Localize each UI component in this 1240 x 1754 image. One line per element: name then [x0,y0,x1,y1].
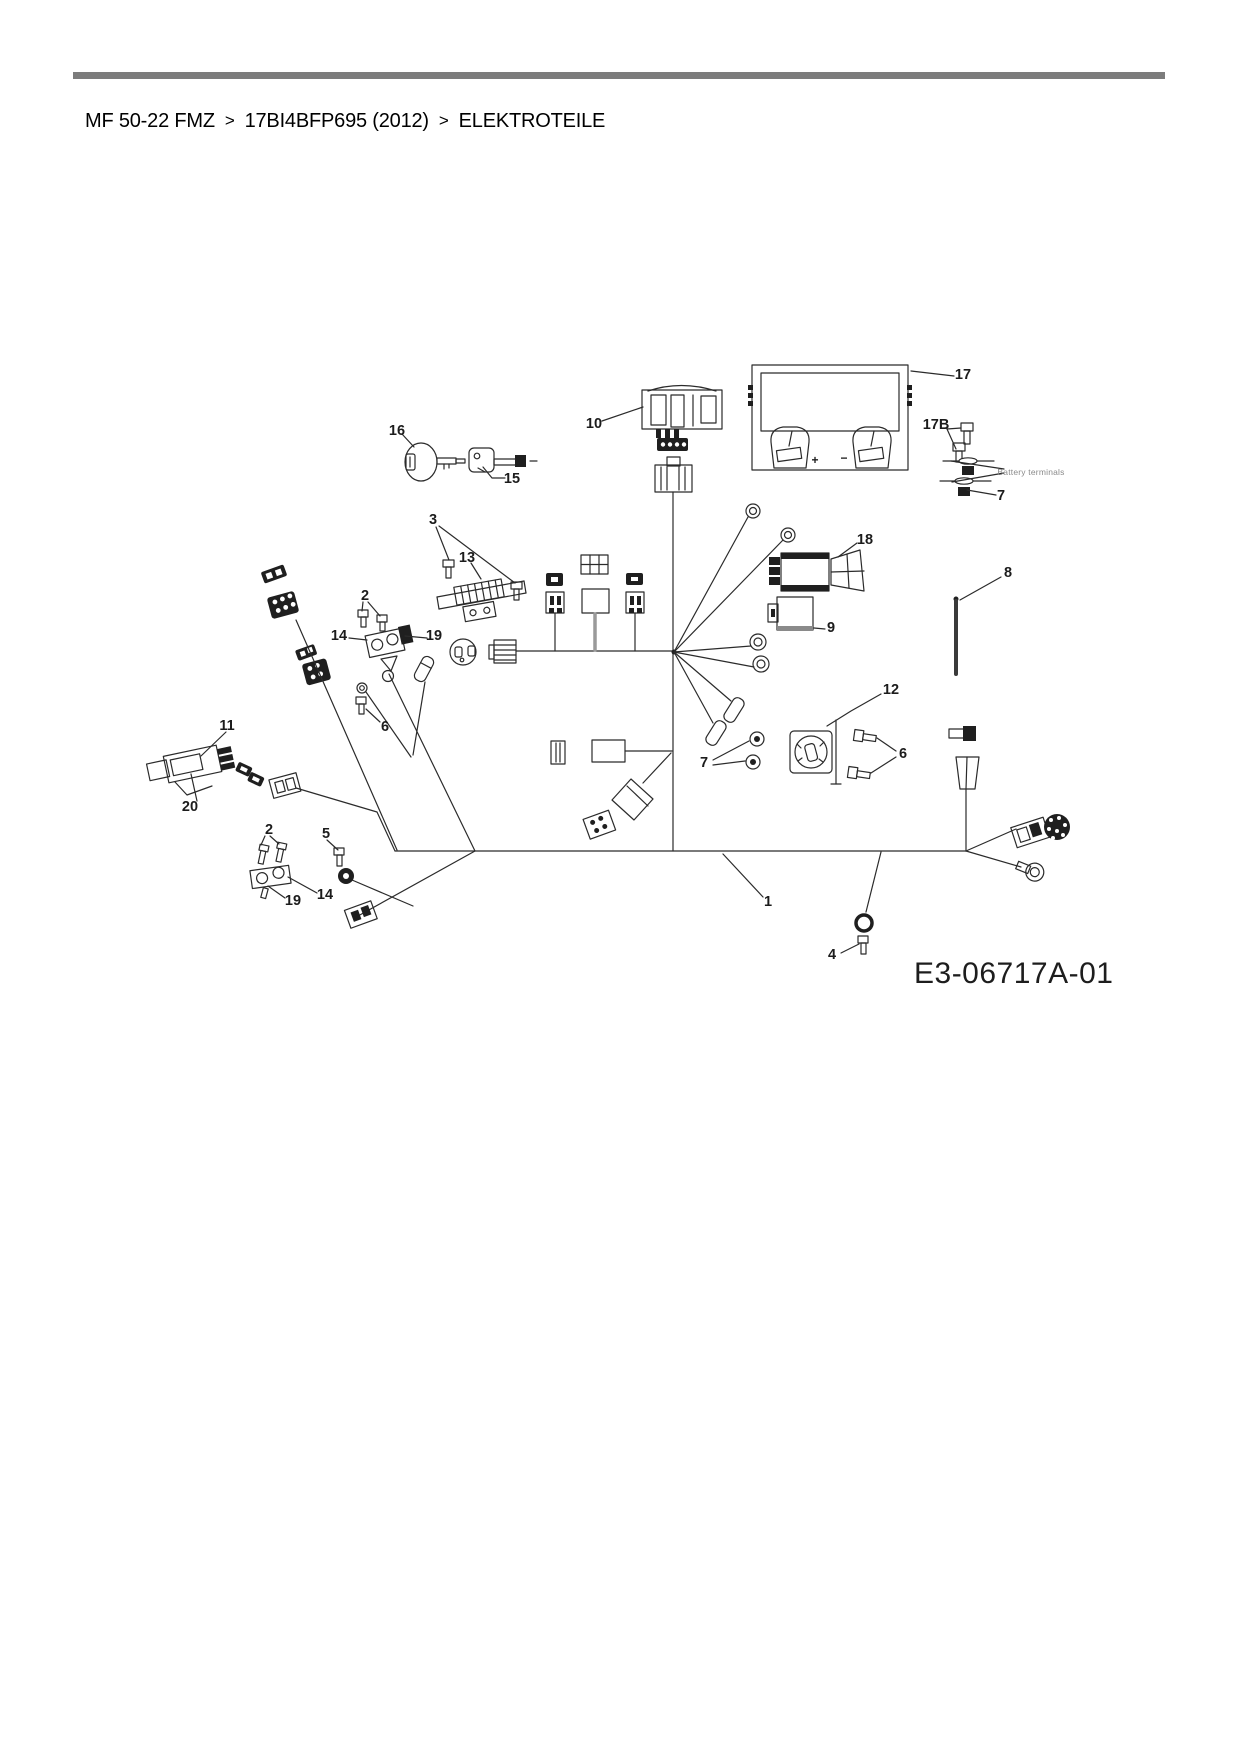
inline-connectors [551,740,653,839]
connector-multipin-b [302,658,332,686]
switch-cluster-14-19 [356,610,516,714]
harness-center [516,492,783,851]
battery-17 [748,365,912,470]
connector-striped [655,457,692,492]
diagram-code: E3-06717A-01 [914,957,1113,991]
connector-4pin [657,438,688,451]
battery-cable-8 [954,597,959,675]
horn-18 [769,550,864,591]
solenoid-10 [642,386,722,439]
wiring-diagram-art [0,0,1240,1754]
harness-end-connectors [1011,814,1070,884]
boot-cup [956,757,979,789]
key-15 [469,448,537,472]
key-fob-16 [405,443,465,481]
connector-small-b [295,644,318,661]
relay-9 [768,597,813,631]
connector-small-a [261,564,288,583]
switch-cluster-bottom-left [250,842,377,928]
battery-terminal-bolts-17b [940,423,994,496]
fuse-holder-3-13 [437,560,526,622]
connector-multipin-a [267,591,300,619]
ring-terminals [704,504,795,769]
interlock-switch-11-20 [146,742,301,798]
connector-row-center [546,555,644,613]
bolt-sleeve [949,726,976,741]
ignition-switch-12 [790,720,841,784]
o-ring-4 [856,915,872,954]
parts-catalog-page: MF 50-22 FMZ>17BI4BFP695 (2012)>ELEKTROT… [0,0,1240,1754]
harness-main-1 [296,620,1021,916]
parts-diagram: 1615101717BBattery terminals731321419611… [0,0,1240,1754]
